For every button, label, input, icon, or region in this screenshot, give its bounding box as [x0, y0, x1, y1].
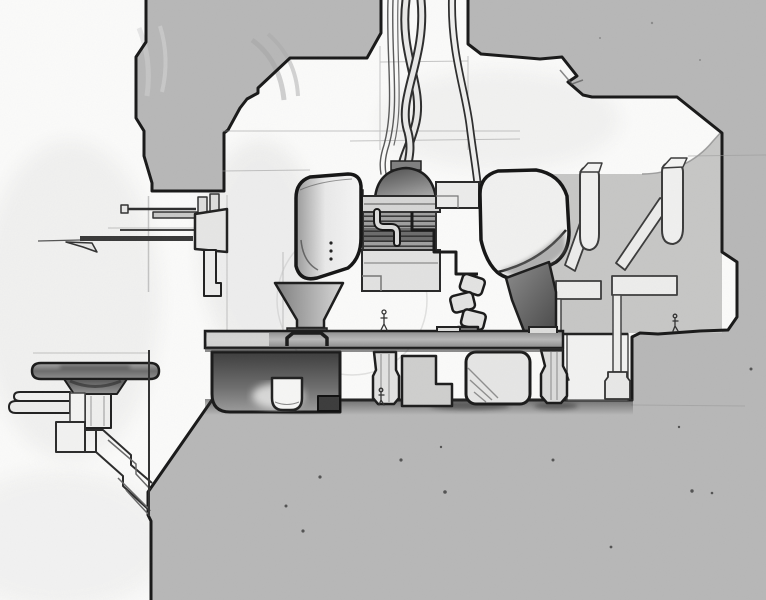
- paper-grain: [0, 0, 766, 600]
- sketch-stage: Graphite concept sketch — suspended mach…: [0, 0, 766, 600]
- concept-sketch: Graphite concept sketch — suspended mach…: [0, 0, 766, 600]
